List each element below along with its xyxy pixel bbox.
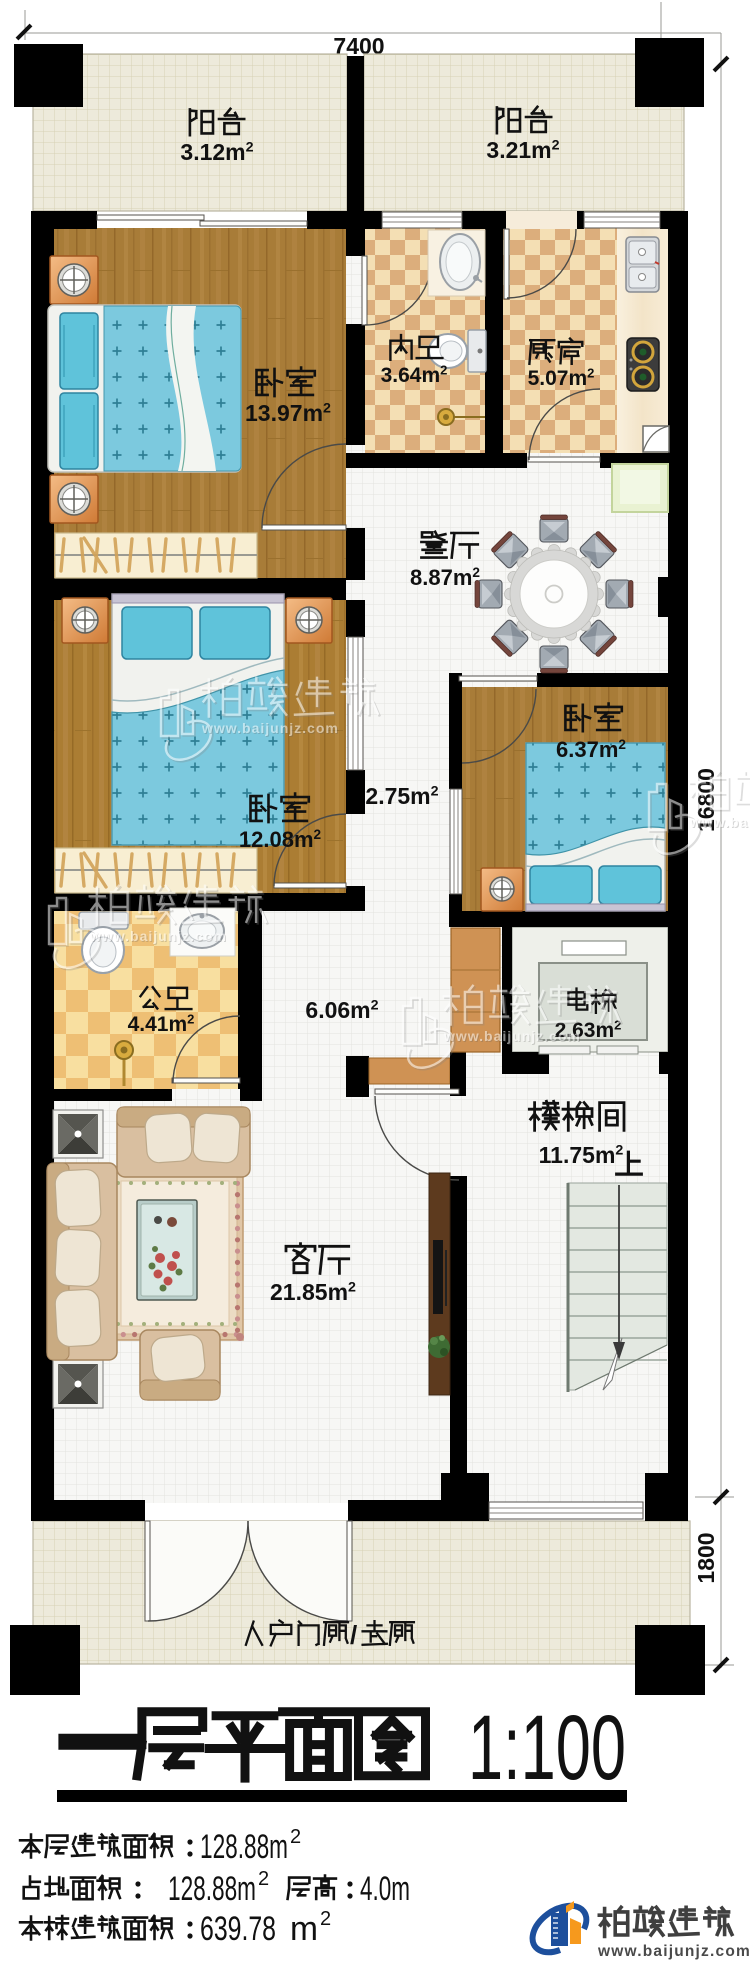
svg-text:4.0m: 4.0m <box>360 1870 410 1908</box>
svg-text:4.41m2: 4.41m2 <box>128 1011 195 1036</box>
svg-text:128.88m: 128.88m <box>200 1828 288 1866</box>
svg-text:2.75m2: 2.75m2 <box>365 783 438 809</box>
svg-text:2: 2 <box>290 1826 301 1848</box>
svg-text:2: 2 <box>320 1908 331 1930</box>
svg-text:12.08m2: 12.08m2 <box>239 827 322 852</box>
svg-text:1800: 1800 <box>693 1532 719 1583</box>
svg-text:639.78: 639.78 <box>200 1910 276 1948</box>
svg-text:5.07m2: 5.07m2 <box>528 365 595 390</box>
svg-text:21.85m2: 21.85m2 <box>270 1279 356 1305</box>
svg-text:/: / <box>350 1620 357 1650</box>
svg-text:www.baijunjz.com: www.baijunjz.com <box>597 1943 750 1960</box>
svg-text:11.75m2: 11.75m2 <box>539 1142 624 1168</box>
svg-text:3.21m2: 3.21m2 <box>486 137 559 163</box>
svg-text:www.baijunjz.com: www.baijunjz.com <box>443 1028 581 1044</box>
svg-text:1:100: 1:100 <box>468 1697 626 1799</box>
svg-text:www.baijunjz.com: www.baijunjz.com <box>89 928 227 944</box>
svg-text:128.88m: 128.88m <box>168 1870 256 1908</box>
svg-text:3.12m2: 3.12m2 <box>180 139 253 165</box>
svg-text:2: 2 <box>258 1868 269 1890</box>
svg-text:8.87m2: 8.87m2 <box>410 565 480 590</box>
svg-text:13.97m2: 13.97m2 <box>245 400 331 426</box>
svg-text:6.06m2: 6.06m2 <box>305 997 378 1023</box>
svg-text:6.37m2: 6.37m2 <box>556 737 626 762</box>
svg-text:m: m <box>290 1910 318 1948</box>
svg-text:3.64m2: 3.64m2 <box>381 362 448 387</box>
svg-text:www.baijunjz.com: www.baijunjz.com <box>201 720 339 736</box>
svg-text:www.baijunjz.com: www.baijunjz.com <box>689 814 750 830</box>
